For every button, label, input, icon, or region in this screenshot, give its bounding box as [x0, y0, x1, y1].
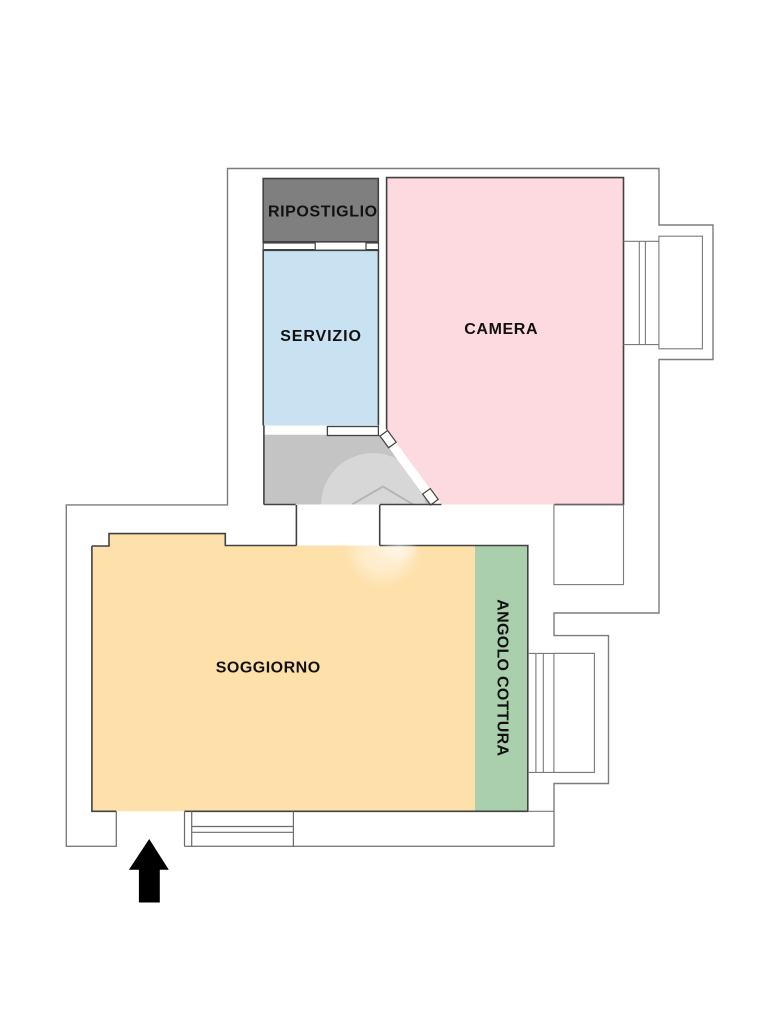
- svg-text:CAMERA: CAMERA: [464, 321, 538, 338]
- svg-text:ANGOLO COTTURA: ANGOLO COTTURA: [494, 599, 511, 756]
- svg-text:SERVIZIO: SERVIZIO: [280, 328, 362, 345]
- svg-text:SOGGIORNO: SOGGIORNO: [216, 660, 321, 677]
- svg-text:RIPOSTIGLIO: RIPOSTIGLIO: [268, 203, 378, 220]
